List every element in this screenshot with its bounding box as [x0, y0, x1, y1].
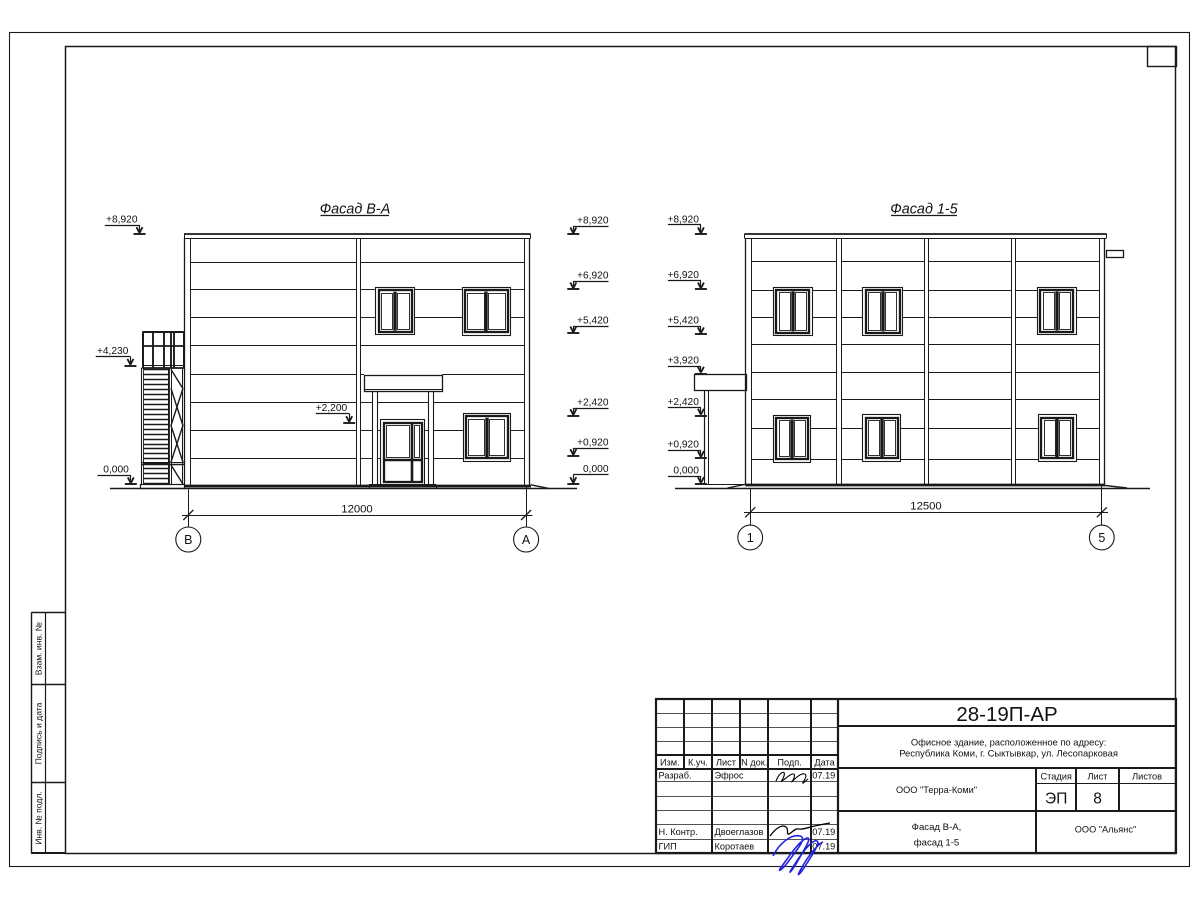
svg-text:0,000: 0,000	[583, 464, 609, 475]
svg-text:Дата: Дата	[814, 757, 835, 767]
svg-text:Республика Коми, г. Сыктывкар,: Республика Коми, г. Сыктывкар, ул. Лесоп…	[899, 748, 1118, 759]
svg-text:+2,420: +2,420	[667, 397, 699, 408]
svg-text:Изм.: Изм.	[660, 757, 680, 767]
svg-text:К.уч.: К.уч.	[688, 757, 708, 767]
svg-text:+2,200: +2,200	[316, 403, 348, 414]
svg-text:+8,920: +8,920	[577, 215, 609, 226]
svg-text:+8,920: +8,920	[667, 214, 699, 225]
svg-text:Взам. инв. №: Взам. инв. №	[34, 622, 44, 675]
svg-text:Стадия: Стадия	[1041, 772, 1072, 782]
svg-text:+0,920: +0,920	[577, 438, 609, 449]
svg-text:Инв. № подл.: Инв. № подл.	[34, 791, 44, 845]
svg-text:ООО "Альянс": ООО "Альянс"	[1075, 825, 1136, 835]
svg-text:5: 5	[1098, 531, 1105, 545]
svg-text:Листов: Листов	[1132, 772, 1162, 782]
svg-text:ЭП: ЭП	[1045, 791, 1067, 808]
svg-text:Коротаев: Коротаев	[715, 841, 755, 851]
svg-text:07.19: 07.19	[812, 827, 835, 837]
svg-text:Лист: Лист	[716, 757, 737, 767]
svg-text:Н. Контр.: Н. Контр.	[659, 827, 698, 837]
svg-text:Офисное здание, расположенное: Офисное здание, расположенное по адресу:	[911, 736, 1107, 747]
svg-text:+6,920: +6,920	[667, 270, 699, 281]
svg-text:07.19: 07.19	[812, 771, 835, 781]
svg-text:ГИП: ГИП	[659, 841, 677, 851]
svg-text:Подп.: Подп.	[777, 757, 801, 767]
svg-text:8: 8	[1093, 791, 1102, 808]
svg-text:Фасад В-А,: Фасад В-А,	[912, 822, 962, 833]
svg-text:+2,420: +2,420	[577, 398, 609, 409]
svg-text:ООО "Терра-Коми": ООО "Терра-Коми"	[896, 785, 977, 795]
svg-text:+3,920: +3,920	[667, 355, 699, 366]
svg-text:N док.: N док.	[741, 757, 767, 767]
svg-text:+4,230: +4,230	[97, 346, 129, 357]
svg-text:Двоеглазов: Двоеглазов	[715, 827, 764, 837]
svg-text:+5,420: +5,420	[577, 315, 609, 326]
svg-text:В: В	[184, 533, 192, 547]
svg-text:0,000: 0,000	[103, 464, 129, 475]
svg-text:фасад 1-5: фасад 1-5	[914, 837, 960, 848]
svg-text:+6,920: +6,920	[577, 270, 609, 281]
svg-text:12000: 12000	[341, 503, 372, 515]
svg-text:Лист: Лист	[1088, 772, 1109, 782]
svg-text:Эфрос: Эфрос	[715, 771, 744, 781]
svg-text:А: А	[522, 533, 531, 547]
svg-text:0,000: 0,000	[673, 465, 699, 476]
svg-text:1: 1	[747, 531, 754, 545]
svg-text:Разраб.: Разраб.	[659, 771, 692, 781]
svg-text:12500: 12500	[910, 501, 941, 513]
svg-text:28-19П-АР: 28-19П-АР	[956, 703, 1057, 726]
svg-text:+8,920: +8,920	[106, 214, 138, 225]
svg-text:+5,420: +5,420	[667, 316, 699, 327]
svg-text:Подпись и дата: Подпись и дата	[34, 702, 44, 764]
svg-text:+0,920: +0,920	[667, 440, 699, 451]
